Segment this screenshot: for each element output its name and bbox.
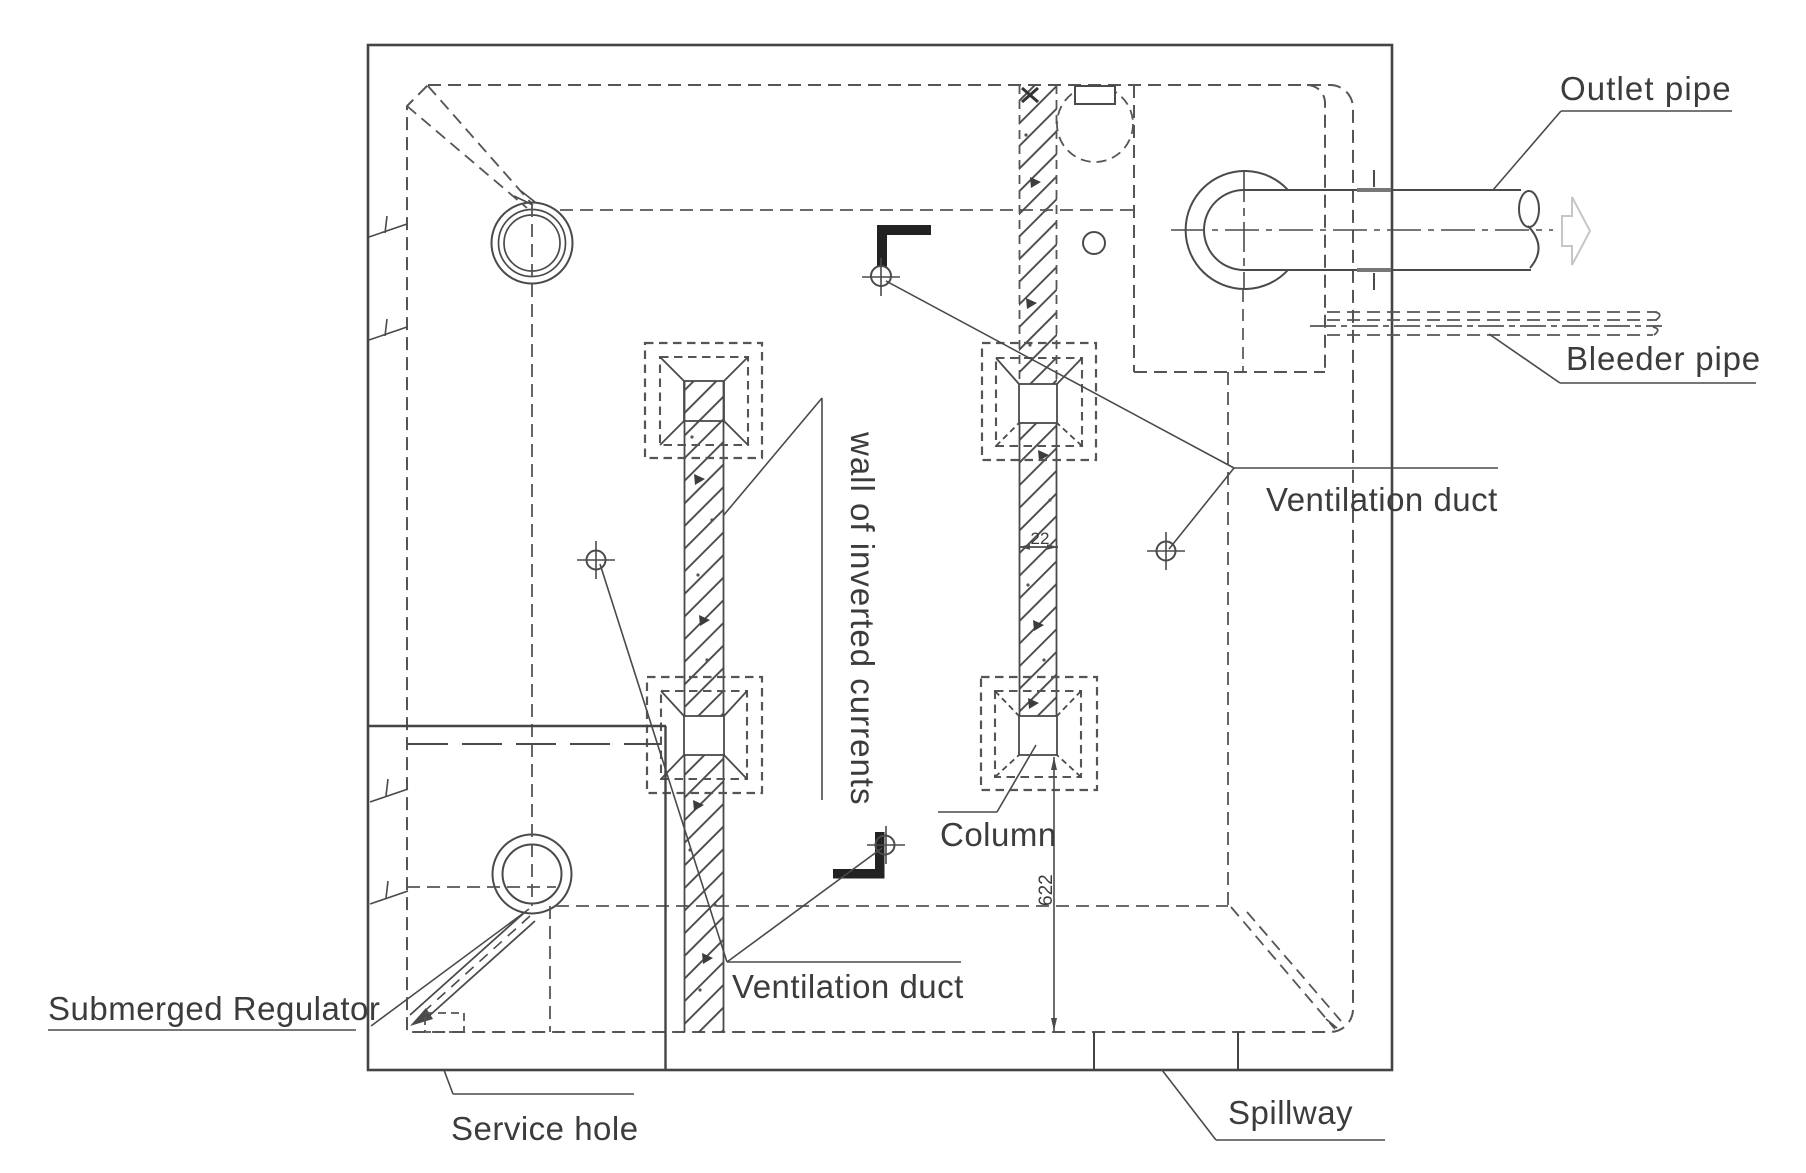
svg-text:Service hole: Service hole (451, 1110, 639, 1147)
svg-text:22: 22 (1031, 529, 1050, 548)
svg-text:622: 622 (1036, 874, 1057, 906)
svg-text:Submerged Regulator: Submerged Regulator (48, 990, 380, 1027)
svg-text:Bleeder pipe: Bleeder pipe (1566, 340, 1761, 377)
svg-text:Column: Column (940, 816, 1057, 853)
svg-text:Ventilation duct: Ventilation duct (732, 968, 964, 1005)
svg-text:Spillway: Spillway (1228, 1094, 1353, 1131)
svg-text:Outlet pipe: Outlet pipe (1560, 70, 1732, 107)
svg-text:wall of inverted currents: wall of inverted currents (844, 431, 881, 805)
svg-text:Ventilation duct: Ventilation duct (1266, 481, 1498, 518)
